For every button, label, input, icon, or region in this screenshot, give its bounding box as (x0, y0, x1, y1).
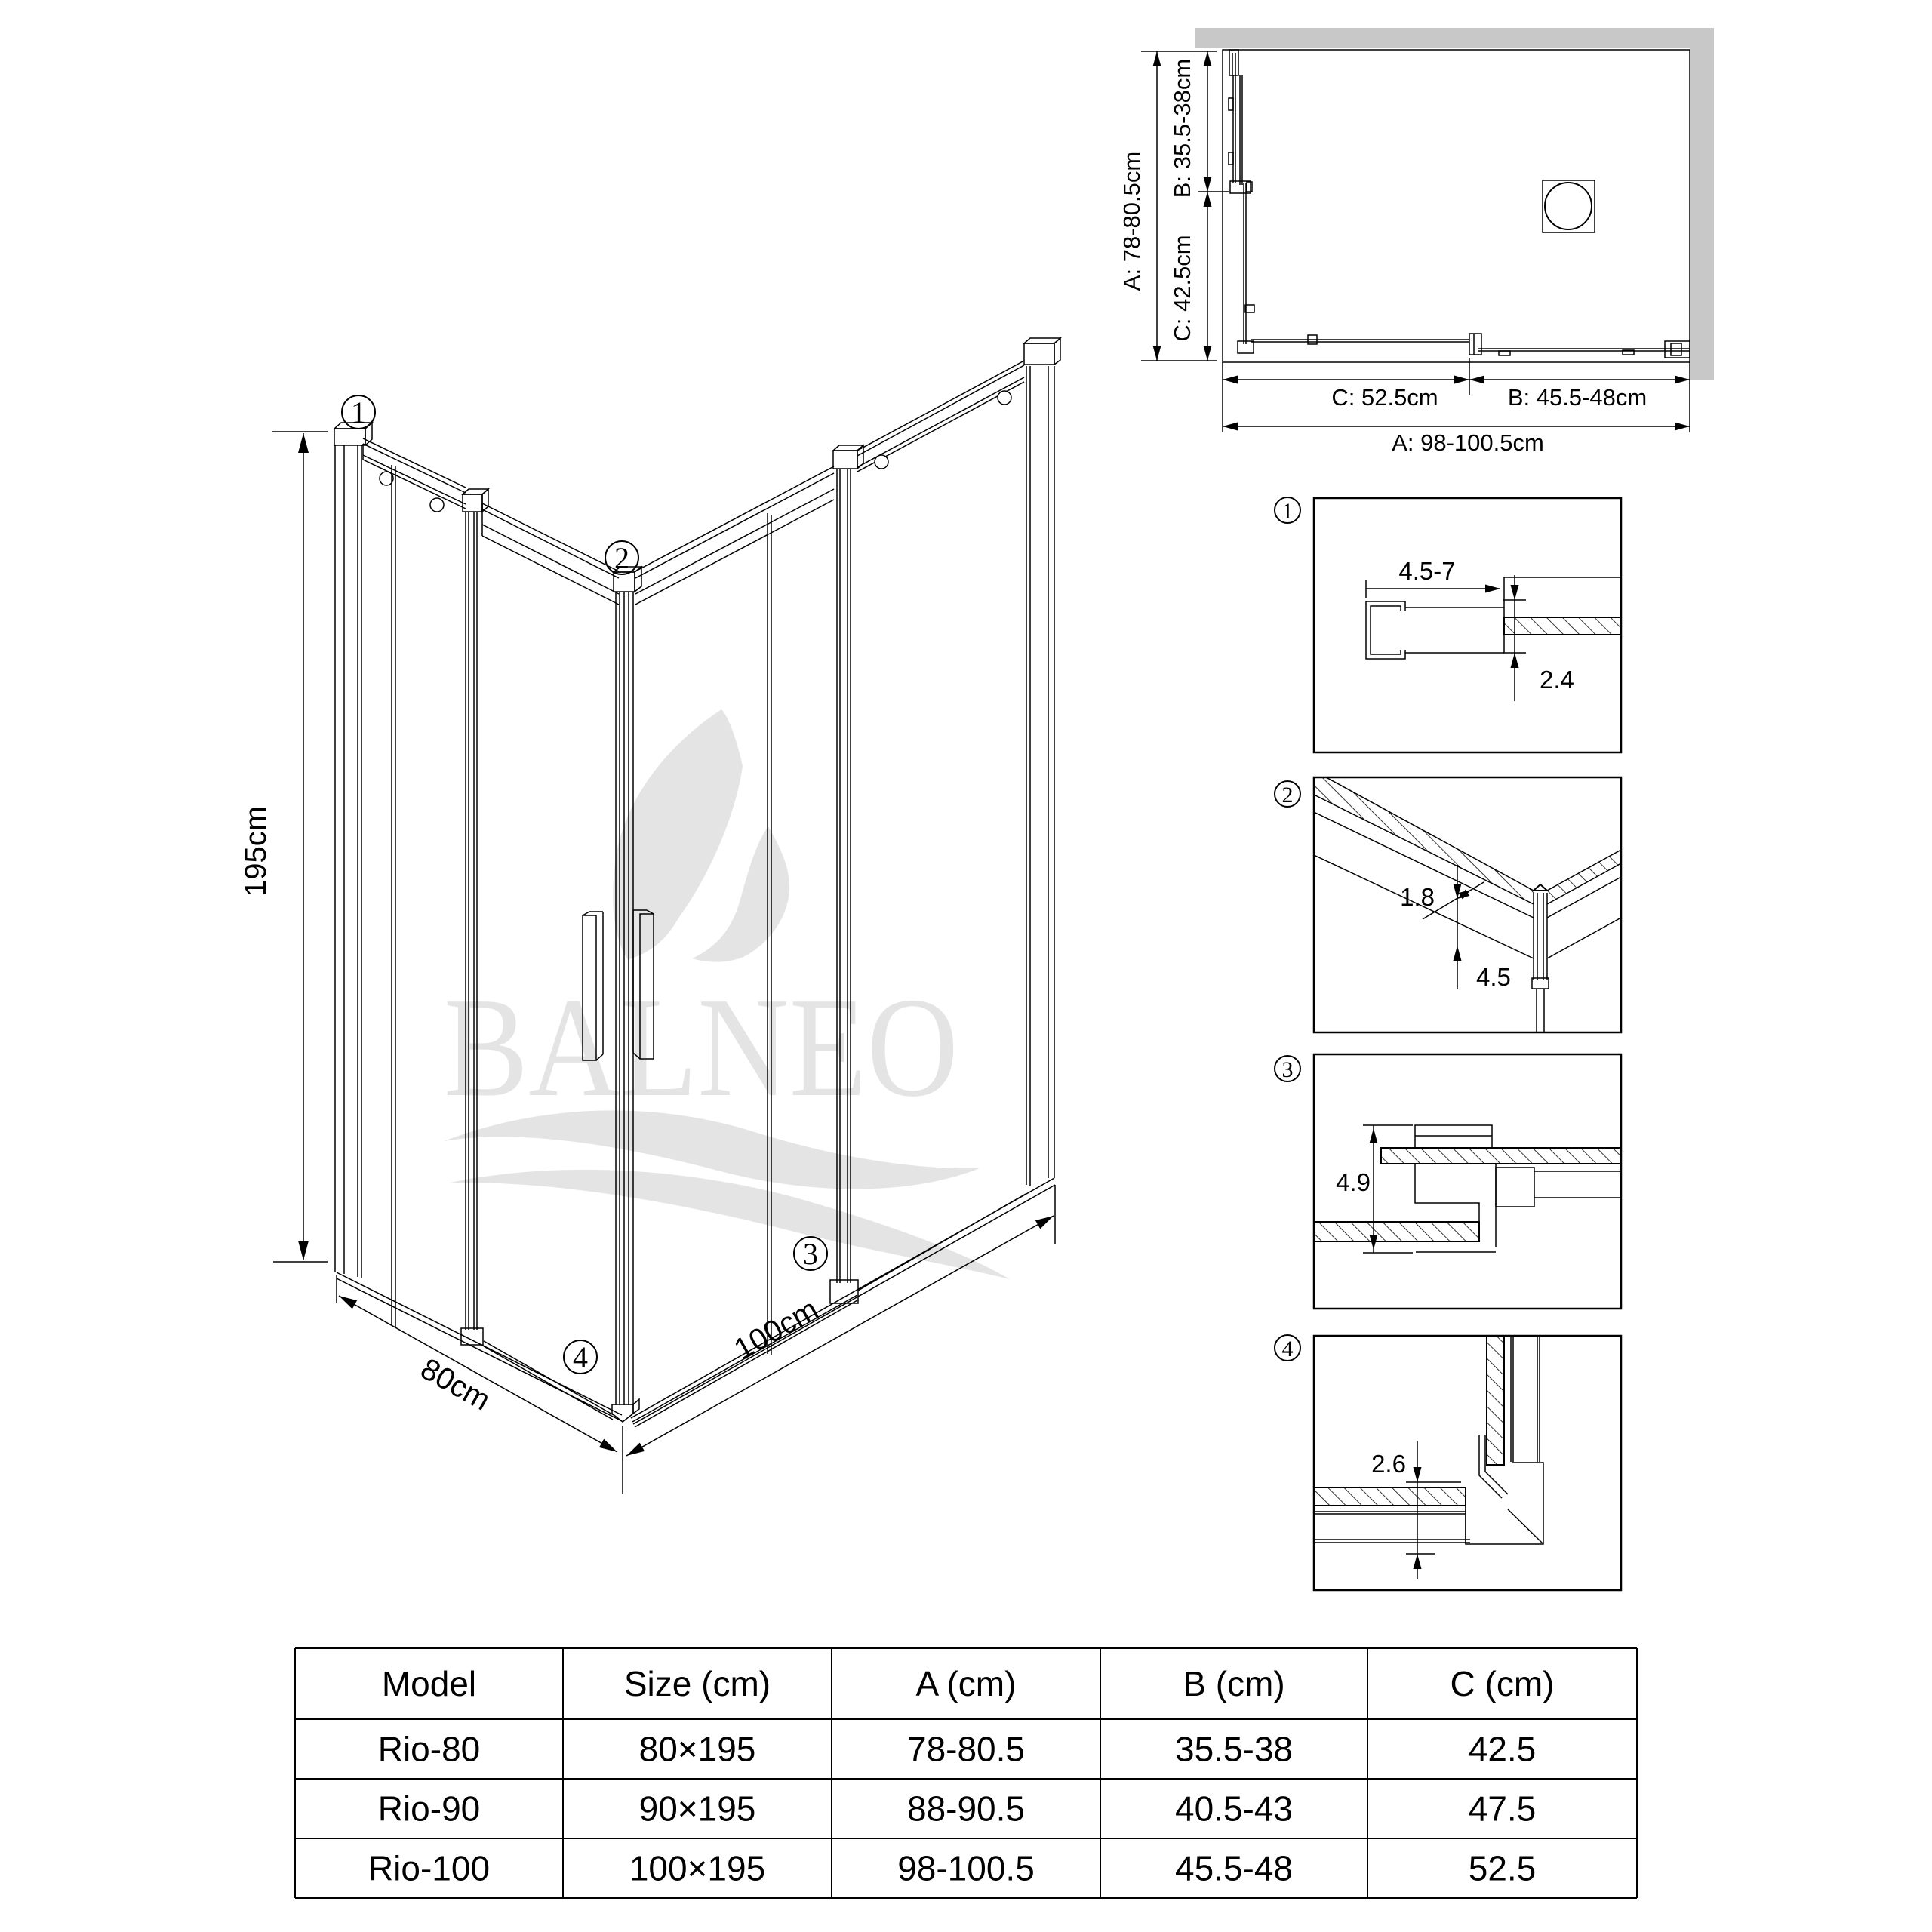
svg-text:35.5-38: 35.5-38 (1175, 1730, 1293, 1769)
svg-text:1: 1 (351, 395, 366, 429)
svg-text:B (cm): B (cm) (1183, 1664, 1284, 1703)
svg-text:88-90.5: 88-90.5 (907, 1789, 1025, 1829)
svg-text:2.4: 2.4 (1540, 666, 1574, 694)
svg-text:4: 4 (573, 1340, 588, 1374)
svg-text:B: 35.5-38cm: B: 35.5-38cm (1169, 59, 1195, 198)
svg-text:2.6: 2.6 (1371, 1450, 1406, 1478)
svg-text:78-80.5: 78-80.5 (907, 1730, 1025, 1769)
svg-text:A (cm): A (cm) (916, 1664, 1017, 1703)
svg-text:BALNEO: BALNEO (444, 968, 958, 1126)
svg-text:45.5-48: 45.5-48 (1175, 1849, 1293, 1888)
svg-text:Rio-90: Rio-90 (378, 1789, 481, 1829)
svg-text:42.5: 42.5 (1469, 1730, 1537, 1769)
svg-text:100cm: 100cm (729, 1293, 824, 1367)
svg-text:Size (cm): Size (cm) (624, 1664, 771, 1703)
svg-text:80×195: 80×195 (639, 1730, 756, 1769)
svg-text:80cm: 80cm (415, 1352, 496, 1417)
svg-text:A: 98-100.5cm: A: 98-100.5cm (1392, 429, 1544, 456)
svg-text:100×195: 100×195 (629, 1849, 765, 1888)
svg-text:98-100.5: 98-100.5 (897, 1849, 1035, 1888)
svg-text:3: 3 (803, 1237, 818, 1271)
svg-text:4.9: 4.9 (1336, 1168, 1371, 1196)
svg-text:4.5: 4.5 (1476, 963, 1511, 991)
svg-text:Rio-80: Rio-80 (378, 1730, 481, 1769)
svg-text:Model: Model (382, 1664, 476, 1703)
svg-text:2: 2 (1282, 783, 1294, 808)
svg-text:1.8: 1.8 (1400, 883, 1435, 911)
svg-text:C: 52.5cm: C: 52.5cm (1331, 384, 1438, 411)
svg-text:2: 2 (614, 541, 629, 575)
svg-text:52.5: 52.5 (1469, 1849, 1537, 1888)
svg-text:4.5-7: 4.5-7 (1398, 557, 1455, 585)
svg-text:90×195: 90×195 (639, 1789, 756, 1829)
svg-text:C: 42.5cm: C: 42.5cm (1169, 235, 1195, 341)
svg-text:B: 45.5-48cm: B: 45.5-48cm (1508, 384, 1647, 411)
svg-text:40.5-43: 40.5-43 (1175, 1789, 1293, 1829)
svg-text:A: 78-80.5cm: A: 78-80.5cm (1118, 152, 1145, 291)
svg-text:47.5: 47.5 (1469, 1789, 1537, 1829)
svg-text:Rio-100: Rio-100 (368, 1849, 490, 1888)
svg-text:195cm: 195cm (239, 806, 272, 897)
svg-text:4: 4 (1282, 1337, 1294, 1361)
svg-text:3: 3 (1282, 1057, 1294, 1082)
svg-text:1: 1 (1282, 499, 1294, 524)
svg-text:C (cm): C (cm) (1451, 1664, 1555, 1703)
